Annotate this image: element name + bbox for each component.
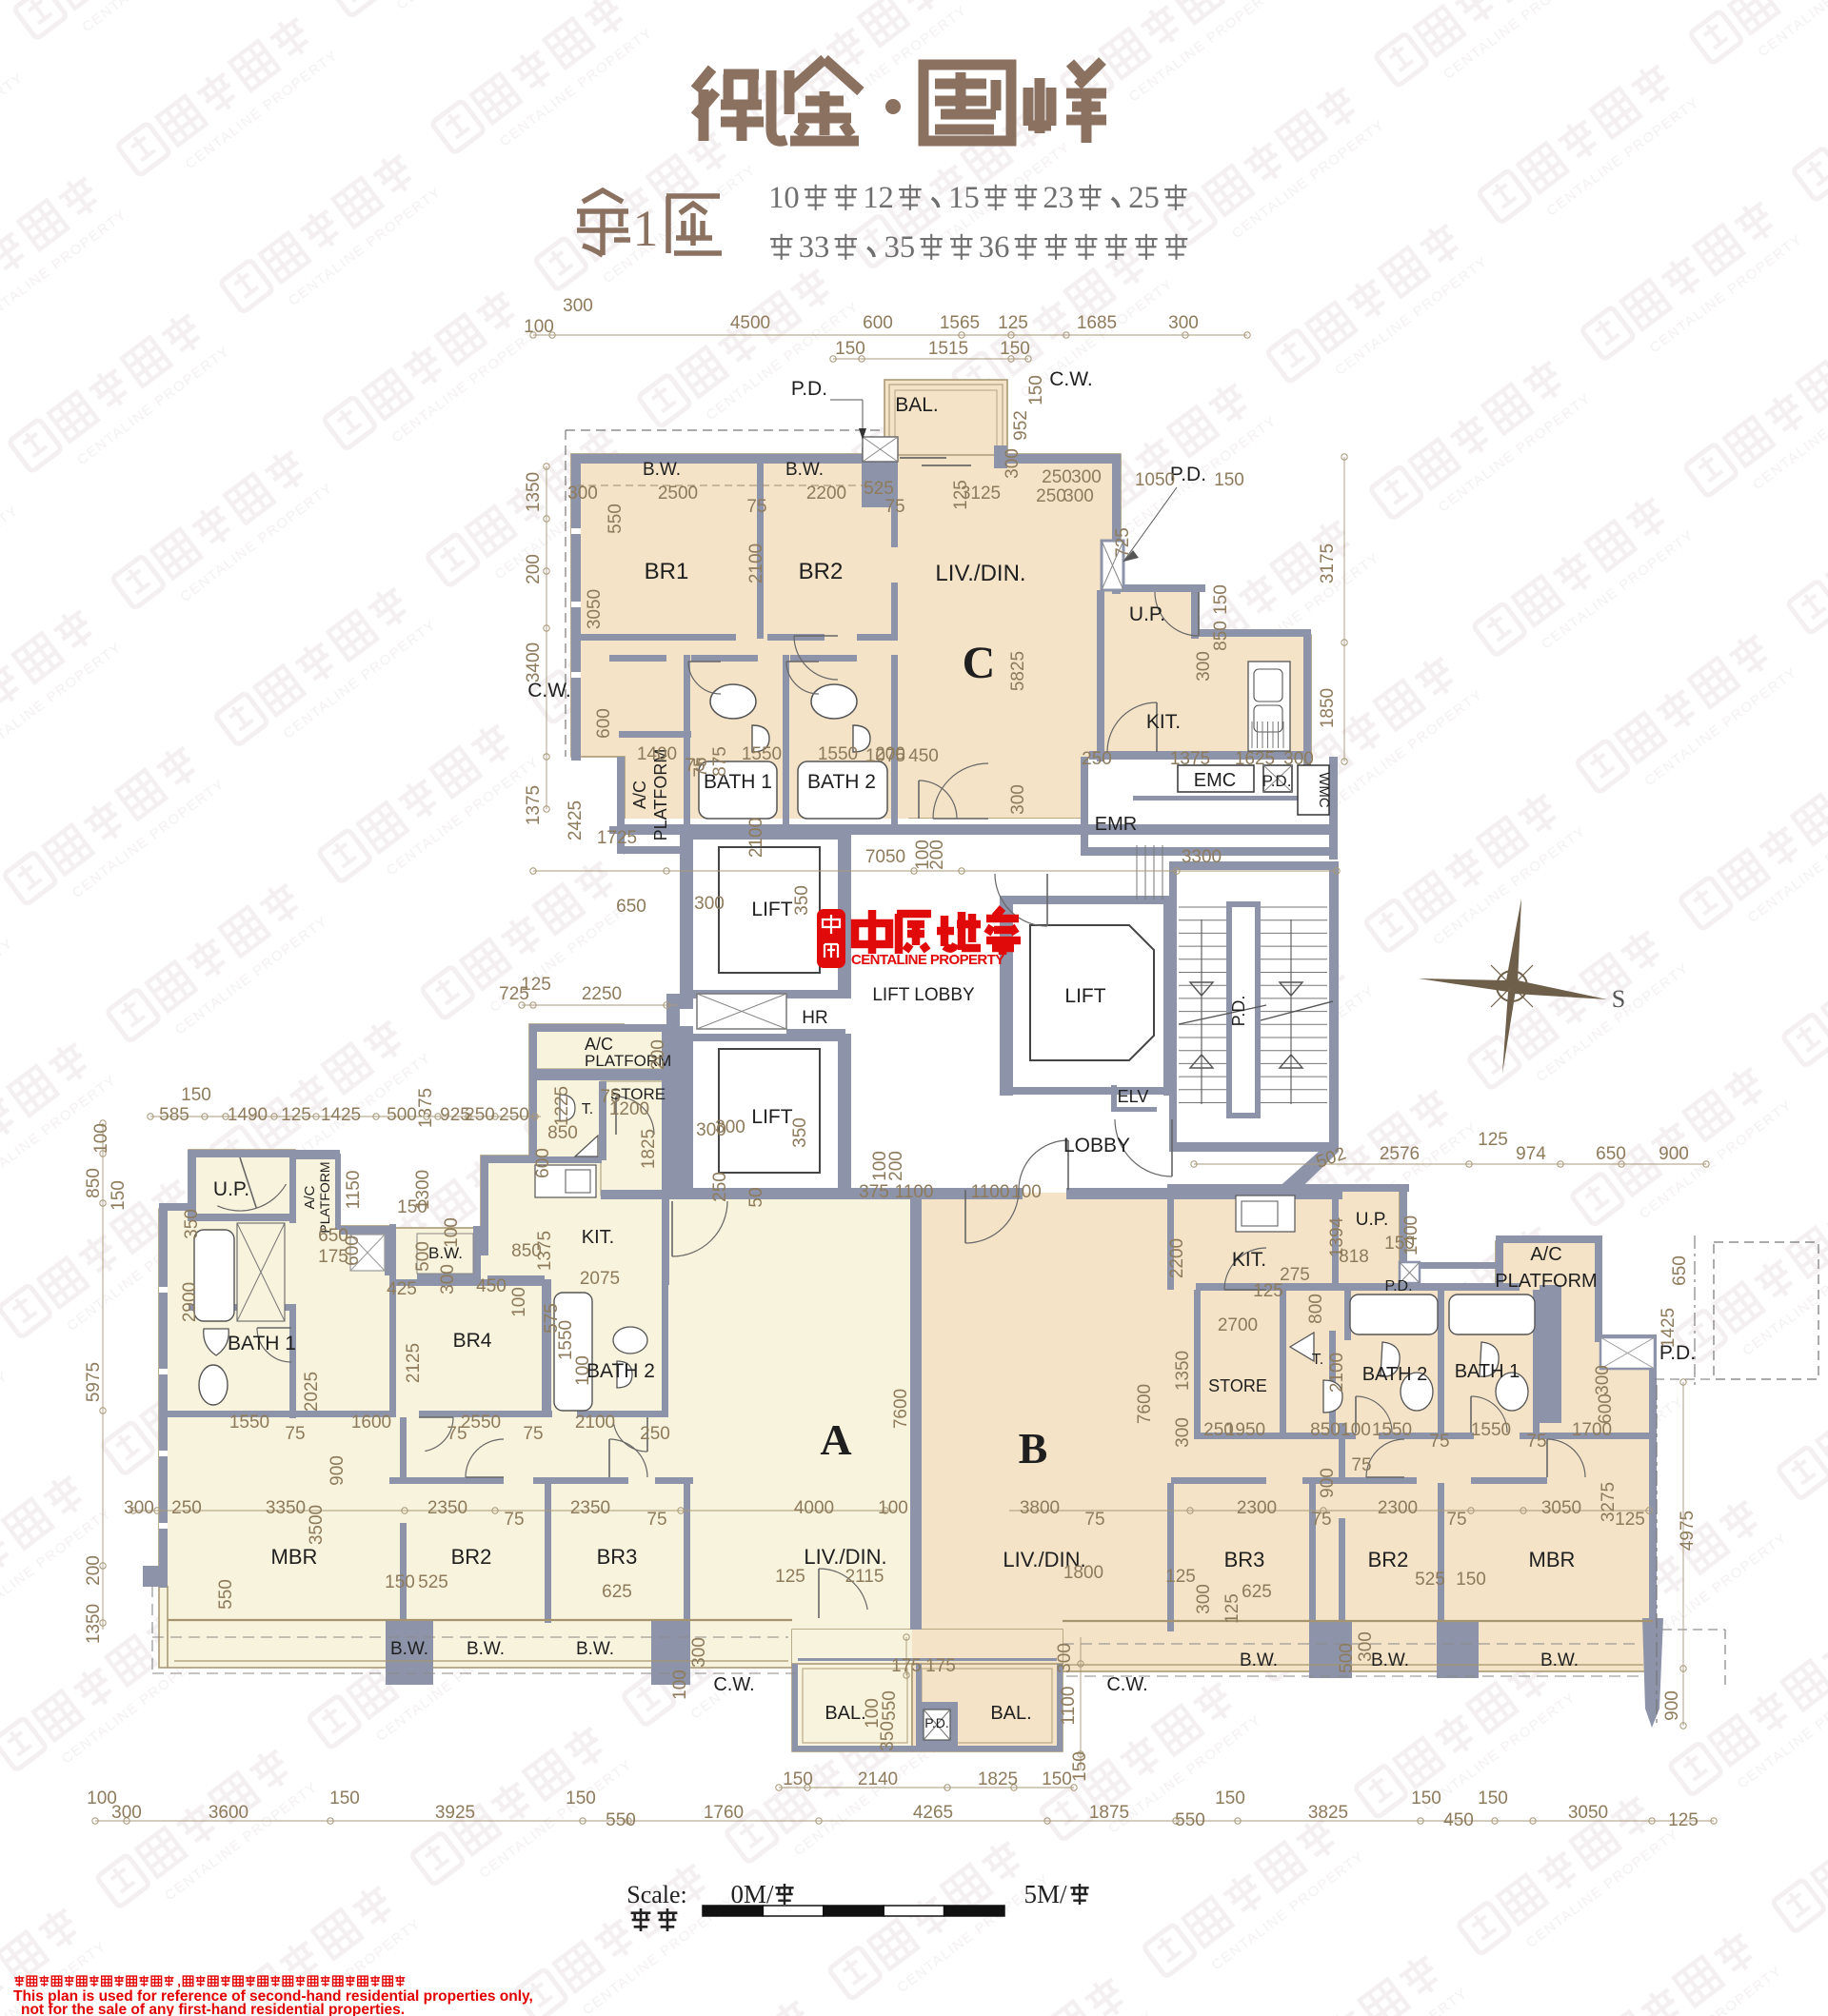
svg-text:250: 250 [171, 1498, 202, 1518]
svg-text:125: 125 [281, 1105, 311, 1125]
svg-text:1: 1 [633, 200, 659, 257]
svg-text:ELV: ELV [1118, 1087, 1149, 1106]
svg-text:A/C: A/C [1530, 1244, 1561, 1265]
svg-text:P.D.: P.D. [924, 1715, 948, 1730]
svg-text:75: 75 [1429, 1432, 1449, 1452]
svg-text:75: 75 [1526, 1432, 1546, 1452]
svg-text:LOBBY: LOBBY [1063, 1135, 1130, 1156]
svg-text:500: 500 [1337, 1643, 1357, 1673]
svg-text:1050: 1050 [1135, 470, 1175, 490]
svg-text:300: 300 [689, 1637, 709, 1668]
svg-text:175: 175 [925, 1656, 956, 1676]
svg-text:200: 200 [886, 1151, 906, 1181]
svg-text:300: 300 [1071, 467, 1102, 487]
svg-text:75: 75 [884, 497, 904, 517]
svg-text:MBR: MBR [1529, 1548, 1576, 1571]
svg-text:2350: 2350 [427, 1498, 467, 1518]
svg-text:375: 375 [859, 1182, 889, 1202]
svg-text:2300: 2300 [1378, 1498, 1418, 1518]
svg-text:275: 275 [1280, 1265, 1310, 1285]
svg-text:300: 300 [1055, 1643, 1075, 1673]
svg-text:1075: 1075 [865, 746, 905, 766]
svg-text:200: 200 [84, 1555, 104, 1586]
svg-text:LIFT: LIFT [751, 899, 792, 920]
svg-text:250: 250 [1036, 486, 1066, 506]
svg-text:7600: 7600 [891, 1389, 911, 1429]
svg-text:100: 100 [509, 1287, 529, 1317]
svg-text:3125: 3125 [961, 484, 1001, 504]
svg-text:450: 450 [476, 1276, 507, 1296]
svg-text:B.W.: B.W. [1540, 1650, 1579, 1670]
svg-text:7050: 7050 [865, 847, 905, 867]
svg-text:425: 425 [387, 1279, 417, 1299]
svg-text:1550: 1550 [1372, 1420, 1412, 1440]
svg-text:2200: 2200 [1167, 1238, 1187, 1278]
svg-text:300: 300 [1008, 784, 1028, 815]
svg-text:A/C: A/C [302, 1185, 318, 1209]
svg-text:900: 900 [1659, 1144, 1689, 1164]
svg-text:525: 525 [864, 479, 894, 499]
svg-text:100: 100 [878, 1498, 908, 1518]
svg-text:150: 150 [1211, 584, 1231, 615]
svg-text:EMC: EMC [1194, 770, 1236, 791]
svg-text:500: 500 [413, 1241, 433, 1272]
svg-text:BR2: BR2 [451, 1545, 492, 1569]
svg-text:1425: 1425 [1659, 1308, 1679, 1348]
svg-text:1550: 1550 [229, 1413, 269, 1433]
svg-text:BATH 1: BATH 1 [1455, 1361, 1520, 1382]
svg-text:150: 150 [1042, 1769, 1072, 1789]
svg-text:100: 100 [524, 317, 554, 337]
svg-text:1550: 1550 [742, 744, 782, 764]
svg-text:300: 300 [124, 1498, 154, 1518]
svg-text:300: 300 [1356, 1631, 1376, 1662]
svg-text:900: 900 [328, 1455, 348, 1486]
svg-text:1425: 1425 [321, 1105, 361, 1125]
svg-text:75: 75 [1446, 1510, 1466, 1530]
svg-text:800: 800 [1306, 1294, 1326, 1324]
svg-text:1100: 1100 [895, 1182, 934, 1202]
svg-text:650: 650 [616, 897, 646, 917]
svg-text:C: C [963, 638, 996, 688]
svg-text:10: 10 [768, 181, 800, 215]
svg-text:75: 75 [1311, 1510, 1331, 1530]
svg-text:Scale:: Scale: [626, 1881, 687, 1908]
svg-text:PLATFORM: PLATFORM [1495, 1271, 1597, 1292]
svg-text:KIT.: KIT. [1232, 1249, 1266, 1271]
svg-text:150: 150 [1070, 1751, 1090, 1782]
svg-text:875: 875 [710, 746, 730, 777]
svg-text:75: 75 [1084, 1510, 1104, 1530]
svg-text:BR1: BR1 [645, 559, 689, 584]
svg-text:B.W.: B.W. [785, 460, 824, 480]
svg-text:150: 150 [1214, 470, 1244, 490]
svg-text:550: 550 [880, 1690, 900, 1721]
svg-text:550: 550 [1175, 1810, 1205, 1830]
svg-text:75: 75 [691, 757, 711, 777]
svg-text:150: 150 [1384, 1234, 1415, 1254]
svg-text:C.W.: C.W. [1106, 1674, 1147, 1695]
svg-text:T.: T. [1312, 1352, 1323, 1368]
svg-text:200: 200 [524, 554, 544, 584]
svg-text:1760: 1760 [704, 1803, 744, 1823]
svg-text:125: 125 [1478, 1130, 1508, 1150]
svg-text:125: 125 [1253, 1281, 1283, 1301]
svg-text:25: 25 [1128, 181, 1160, 215]
svg-text:1550: 1550 [1471, 1420, 1511, 1440]
svg-text:3925: 3925 [435, 1803, 475, 1823]
svg-text:550: 550 [606, 1810, 636, 1830]
svg-text:BR2: BR2 [799, 559, 844, 584]
svg-text:550: 550 [216, 1579, 236, 1610]
svg-text:1625: 1625 [1235, 749, 1275, 769]
svg-text:2350: 2350 [570, 1498, 610, 1518]
svg-text:BAL.: BAL. [990, 1703, 1031, 1724]
svg-text:500: 500 [387, 1105, 417, 1125]
svg-text:1225: 1225 [552, 1086, 572, 1126]
svg-text:300: 300 [694, 894, 725, 914]
svg-text:600: 600 [1596, 1393, 1616, 1424]
svg-text:75: 75 [285, 1424, 305, 1444]
svg-text:4975: 4975 [1678, 1511, 1698, 1551]
svg-text:75: 75 [746, 497, 766, 517]
svg-text:100: 100 [442, 1217, 462, 1248]
svg-text:150: 150 [1000, 339, 1030, 359]
svg-text:125: 125 [1222, 1593, 1242, 1624]
svg-text:3050: 3050 [1541, 1498, 1581, 1518]
svg-text:300: 300 [1063, 486, 1094, 506]
svg-text:300: 300 [1283, 749, 1314, 769]
svg-text:300: 300 [1194, 651, 1214, 682]
svg-text:300: 300 [1003, 448, 1023, 479]
svg-text:100: 100 [670, 1670, 690, 1700]
svg-text:450: 450 [908, 746, 939, 766]
svg-text:1850: 1850 [1318, 688, 1338, 728]
svg-text:2900: 2900 [180, 1282, 200, 1322]
svg-text:650: 650 [1670, 1255, 1690, 1286]
svg-text:450: 450 [1443, 1810, 1474, 1830]
svg-text:PLATFORM: PLATFORM [317, 1161, 332, 1233]
svg-text:150: 150 [397, 1197, 427, 1217]
svg-text:75: 75 [646, 1510, 666, 1530]
svg-text:MBR: MBR [271, 1545, 318, 1569]
svg-text:23: 23 [1043, 181, 1074, 215]
svg-text:2115: 2115 [845, 1567, 884, 1587]
svg-text:150: 150 [385, 1572, 415, 1592]
svg-text:2425: 2425 [566, 800, 586, 840]
svg-text:1515: 1515 [928, 339, 968, 359]
svg-text:B.W.: B.W. [390, 1639, 428, 1659]
svg-text:1685: 1685 [1077, 313, 1117, 333]
svg-text:650: 650 [1596, 1144, 1626, 1164]
svg-text:1100: 1100 [971, 1182, 1010, 1202]
svg-text:2576: 2576 [1380, 1144, 1420, 1164]
svg-text:200: 200 [648, 1039, 668, 1070]
svg-text:125: 125 [775, 1567, 805, 1587]
svg-text:5M/: 5M/ [1023, 1880, 1067, 1908]
svg-text:C.W.: C.W. [1049, 368, 1093, 390]
svg-text:600: 600 [533, 1148, 553, 1178]
svg-text:100: 100 [91, 1123, 111, 1154]
svg-text:150: 150 [329, 1789, 360, 1808]
svg-text:1375: 1375 [535, 1231, 555, 1271]
svg-text:150: 150 [1456, 1570, 1486, 1590]
svg-text:725: 725 [1113, 527, 1133, 558]
svg-text:S: S [1612, 985, 1625, 1013]
svg-text:1375: 1375 [1170, 749, 1210, 769]
svg-text:3175: 3175 [1318, 544, 1338, 583]
svg-text:2300: 2300 [1237, 1498, 1277, 1518]
svg-text:300: 300 [1194, 1584, 1214, 1614]
svg-text:900: 900 [1662, 1690, 1682, 1721]
svg-text:1394: 1394 [1327, 1216, 1347, 1257]
svg-text:3050: 3050 [585, 589, 605, 629]
svg-text:75: 75 [1351, 1455, 1371, 1475]
svg-text:100: 100 [1011, 1182, 1042, 1202]
svg-text:250: 250 [499, 1105, 529, 1125]
svg-text:U.P.: U.P. [1129, 603, 1165, 625]
svg-text:3300: 3300 [1182, 847, 1222, 867]
svg-text:75: 75 [523, 1424, 543, 1444]
svg-text:2550: 2550 [461, 1413, 501, 1433]
svg-text:B.W.: B.W. [467, 1639, 505, 1659]
svg-text:725: 725 [499, 984, 529, 1004]
svg-text:35: 35 [884, 230, 916, 265]
svg-text:1875: 1875 [1089, 1803, 1129, 1823]
svg-text:625: 625 [602, 1582, 632, 1602]
svg-text:250: 250 [1082, 749, 1112, 769]
svg-text:200: 200 [927, 840, 947, 870]
svg-text:300: 300 [563, 296, 593, 316]
svg-text:3275: 3275 [1599, 1482, 1619, 1522]
svg-text:125: 125 [998, 313, 1028, 333]
svg-text:350: 350 [182, 1209, 202, 1239]
svg-text:7600: 7600 [1135, 1384, 1155, 1424]
svg-text:350: 350 [878, 1721, 898, 1751]
svg-text:P.D.: P.D. [791, 378, 827, 400]
svg-text:2100: 2100 [1327, 1353, 1347, 1393]
svg-text:WMC: WMC [1316, 772, 1332, 808]
svg-text:KIT.: KIT. [582, 1227, 614, 1248]
svg-text:300: 300 [1593, 1365, 1613, 1395]
svg-text:B.W.: B.W. [576, 1639, 614, 1659]
svg-text:LIFT: LIFT [1064, 985, 1105, 1007]
svg-text:1200: 1200 [609, 1099, 649, 1119]
svg-text:P.D.: P.D. [1262, 772, 1292, 790]
svg-text:2075: 2075 [580, 1269, 620, 1289]
svg-text:1100: 1100 [1059, 1687, 1079, 1726]
svg-text:300: 300 [111, 1803, 142, 1823]
svg-text:850: 850 [1211, 621, 1231, 651]
svg-text:2125: 2125 [404, 1343, 424, 1383]
svg-text:75: 75 [504, 1510, 524, 1530]
svg-text:300: 300 [1173, 1417, 1193, 1448]
svg-text:T.: T. [582, 1101, 593, 1117]
svg-text:BAL.: BAL. [895, 394, 939, 416]
svg-text:550: 550 [606, 504, 626, 534]
svg-text:974: 974 [1516, 1144, 1546, 1164]
svg-text:1490: 1490 [228, 1105, 268, 1125]
svg-text:2140: 2140 [858, 1769, 898, 1789]
svg-text:952: 952 [1011, 410, 1031, 441]
svg-text:3800: 3800 [1020, 1498, 1060, 1518]
svg-text:300: 300 [696, 1120, 726, 1140]
svg-text:B.W.: B.W. [643, 460, 681, 480]
svg-text:3600: 3600 [209, 1803, 248, 1823]
svg-text:2500: 2500 [658, 484, 698, 504]
svg-text:5825: 5825 [1008, 651, 1028, 691]
svg-text:2100: 2100 [746, 818, 766, 858]
svg-text:A/C: A/C [585, 1035, 613, 1054]
svg-text:36: 36 [979, 230, 1010, 265]
svg-text:5975: 5975 [84, 1362, 104, 1402]
svg-text:50: 50 [746, 1187, 766, 1207]
svg-text:150: 150 [1478, 1789, 1508, 1808]
svg-text:525: 525 [1415, 1570, 1445, 1590]
svg-text:100: 100 [1341, 1420, 1371, 1440]
svg-text:2100: 2100 [746, 544, 766, 583]
svg-text:150: 150 [109, 1180, 129, 1211]
svg-text:LIFT LOBBY: LIFT LOBBY [872, 985, 975, 1005]
svg-text:BATH 1: BATH 1 [228, 1333, 296, 1354]
svg-text:2100: 2100 [575, 1413, 615, 1433]
svg-text:250: 250 [640, 1424, 670, 1444]
svg-text:BR3: BR3 [1224, 1548, 1265, 1571]
svg-text:A: A [820, 1415, 851, 1464]
svg-text:525: 525 [418, 1572, 448, 1592]
svg-text:250: 250 [1042, 467, 1072, 487]
svg-text:850: 850 [547, 1123, 578, 1143]
svg-text:P.D.: P.D. [1229, 996, 1248, 1027]
svg-text:1600: 1600 [351, 1413, 391, 1433]
svg-text:2700: 2700 [1218, 1315, 1258, 1335]
svg-text:3400: 3400 [524, 642, 544, 682]
svg-text:,: , [177, 1974, 181, 1988]
svg-text:33: 33 [799, 230, 830, 265]
svg-text:600: 600 [343, 1235, 363, 1266]
svg-text:350: 350 [792, 885, 812, 916]
svg-text:150: 150 [783, 1769, 813, 1789]
svg-text:1950: 1950 [1225, 1420, 1265, 1440]
svg-text:4500: 4500 [730, 313, 770, 333]
svg-text:BR4: BR4 [453, 1330, 492, 1352]
svg-text:BR3: BR3 [597, 1545, 638, 1569]
svg-text:125: 125 [1668, 1810, 1699, 1830]
svg-text:100: 100 [573, 1355, 593, 1386]
svg-text:350: 350 [790, 1117, 810, 1148]
svg-text:150: 150 [1215, 1789, 1245, 1808]
svg-text:1825: 1825 [639, 1129, 659, 1169]
svg-text:HR: HR [802, 1008, 827, 1028]
svg-text:4265: 4265 [913, 1803, 953, 1823]
svg-text:3500: 3500 [307, 1505, 327, 1545]
svg-text:P.D.: P.D. [1170, 464, 1206, 485]
svg-text:2200: 2200 [806, 484, 846, 504]
svg-text:1550: 1550 [818, 744, 858, 764]
svg-text:P.D.: P.D. [1384, 1278, 1412, 1295]
svg-text:12: 12 [863, 181, 894, 215]
svg-text:3825: 3825 [1308, 1803, 1348, 1823]
svg-text:125: 125 [1615, 1510, 1645, 1530]
svg-text:BATH 2: BATH 2 [807, 771, 876, 793]
svg-text:4000: 4000 [794, 1498, 834, 1518]
svg-text:BAL.: BAL. [825, 1703, 865, 1724]
svg-text:not for the sale of any first-: not for the sale of any first-hand resid… [21, 2002, 405, 2016]
svg-text:300: 300 [1168, 313, 1199, 333]
svg-text:BR2: BR2 [1368, 1548, 1409, 1571]
svg-text:600: 600 [863, 313, 893, 333]
svg-text:3350: 3350 [266, 1498, 306, 1518]
svg-text:585: 585 [159, 1105, 189, 1125]
svg-text:150: 150 [1411, 1789, 1441, 1808]
svg-text:2025: 2025 [302, 1372, 322, 1412]
svg-text:1825: 1825 [978, 1769, 1018, 1789]
svg-text:300: 300 [438, 1264, 458, 1295]
svg-text:1150: 1150 [344, 1171, 364, 1210]
svg-text:1375: 1375 [416, 1088, 436, 1128]
svg-text:EMR: EMR [1095, 814, 1137, 835]
svg-text:300: 300 [567, 484, 598, 504]
svg-text:LIV./DIN.: LIV./DIN. [935, 561, 1025, 586]
svg-text:600: 600 [594, 708, 614, 739]
svg-text:2250: 2250 [582, 984, 622, 1004]
svg-text:175: 175 [891, 1656, 922, 1676]
svg-text:150: 150 [1026, 375, 1046, 405]
svg-text:150: 150 [835, 339, 865, 359]
svg-text:B.W.: B.W. [1240, 1650, 1278, 1670]
svg-text:B: B [1019, 1424, 1048, 1472]
svg-text:B.W.: B.W. [1371, 1650, 1409, 1670]
svg-text:BATH 2: BATH 2 [586, 1360, 655, 1382]
svg-text:1350: 1350 [1173, 1351, 1193, 1391]
svg-text:LIV./DIN.: LIV./DIN. [804, 1545, 886, 1569]
svg-text:150: 150 [566, 1789, 596, 1808]
svg-text:1375: 1375 [524, 785, 544, 825]
svg-text:1350: 1350 [524, 472, 544, 512]
svg-text:U.P.: U.P. [213, 1178, 249, 1200]
svg-text:0M/: 0M/ [730, 1880, 774, 1908]
svg-text:625: 625 [1242, 1582, 1272, 1602]
svg-text:CENTALINE PROPERTY: CENTALINE PROPERTY [851, 952, 1004, 968]
svg-text:150: 150 [181, 1085, 211, 1105]
svg-text:LIFT: LIFT [751, 1106, 792, 1128]
svg-text:1565: 1565 [940, 313, 980, 333]
svg-text:900: 900 [1318, 1468, 1338, 1498]
svg-text:3050: 3050 [1568, 1803, 1608, 1823]
svg-text:KIT.: KIT. [1146, 711, 1181, 733]
svg-text:250: 250 [710, 1172, 730, 1202]
svg-text:BATH 2: BATH 2 [1362, 1364, 1428, 1385]
svg-text:15: 15 [948, 181, 980, 215]
svg-text:1800: 1800 [1063, 1563, 1103, 1583]
svg-text:1350: 1350 [84, 1604, 104, 1644]
svg-text:1725: 1725 [597, 828, 637, 848]
svg-text:STORE: STORE [1208, 1376, 1267, 1395]
svg-text:C.W.: C.W. [713, 1674, 754, 1695]
svg-text:125: 125 [1165, 1567, 1196, 1587]
svg-text:1400: 1400 [637, 744, 677, 764]
svg-text:575: 575 [542, 1303, 562, 1334]
svg-text:850: 850 [84, 1168, 104, 1198]
svg-text:250: 250 [465, 1105, 495, 1125]
svg-text:850: 850 [1310, 1420, 1341, 1440]
svg-text:A/C: A/C [630, 781, 649, 809]
svg-text:U.P.: U.P. [1356, 1210, 1389, 1230]
